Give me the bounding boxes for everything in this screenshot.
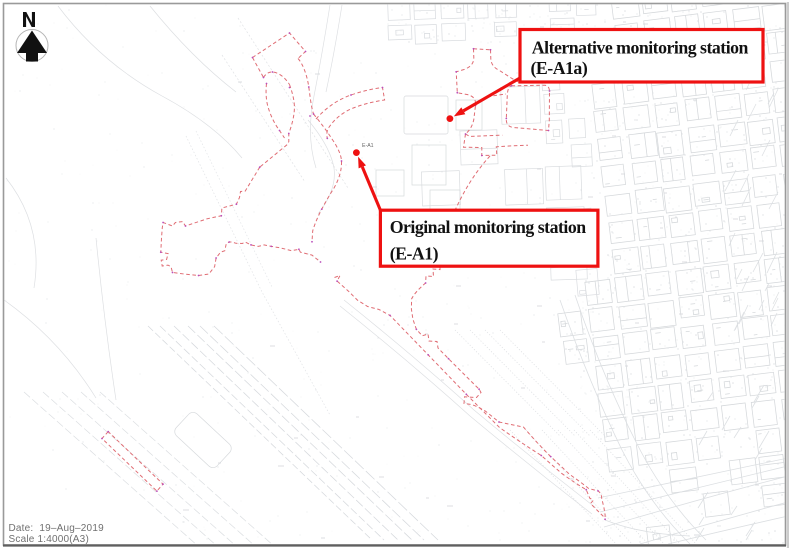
svg-text:Alternative monitoring station: Alternative monitoring station — [532, 37, 749, 57]
svg-text:E-A1: E-A1 — [362, 143, 374, 149]
svg-text:Date: 19–Aug–2019: Date: 19–Aug–2019 — [9, 523, 105, 534]
svg-text:(E-A1a): (E-A1a) — [531, 58, 588, 79]
svg-text:(E-A1): (E-A1) — [390, 243, 439, 264]
svg-text:Original monitoring station: Original monitoring station — [390, 217, 587, 237]
svg-text:Scale 1:4000(A3): Scale 1:4000(A3) — [9, 534, 89, 545]
